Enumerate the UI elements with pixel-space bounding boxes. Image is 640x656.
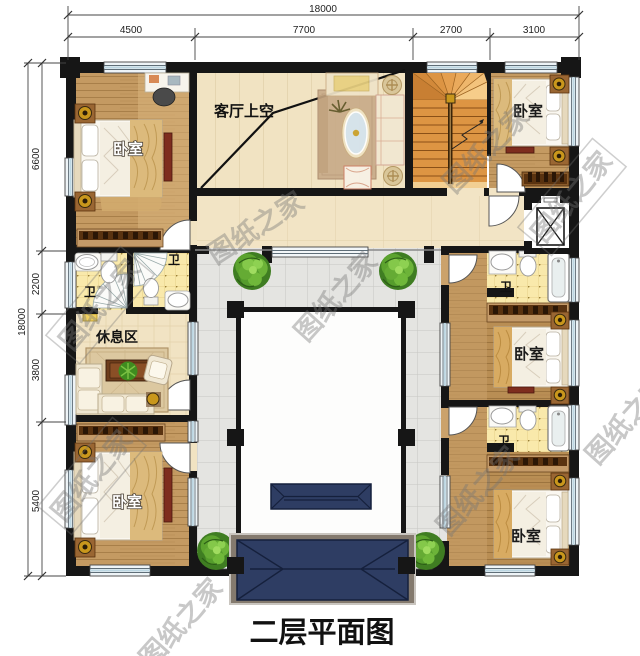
svg-text:6600: 6600 (31, 147, 42, 170)
svg-text:18000: 18000 (17, 308, 28, 336)
svg-text:卧室: 卧室 (511, 527, 541, 545)
svg-text:3800: 3800 (31, 358, 42, 381)
svg-text:2200: 2200 (31, 272, 42, 295)
svg-text:18000: 18000 (309, 4, 337, 15)
svg-text:7700: 7700 (293, 25, 316, 36)
svg-text:二层平面图: 二层平面图 (249, 617, 394, 649)
svg-text:卧室: 卧室 (113, 140, 143, 158)
svg-text:3100: 3100 (523, 25, 546, 36)
svg-text:卫: 卫 (500, 280, 512, 294)
svg-text:2700: 2700 (440, 25, 463, 36)
svg-text:客厅上空: 客厅上空 (213, 102, 274, 120)
svg-text:4500: 4500 (120, 25, 143, 36)
svg-text:卧室: 卧室 (514, 345, 544, 363)
svg-text:卧室: 卧室 (112, 493, 142, 511)
svg-text:卫: 卫 (168, 253, 180, 267)
